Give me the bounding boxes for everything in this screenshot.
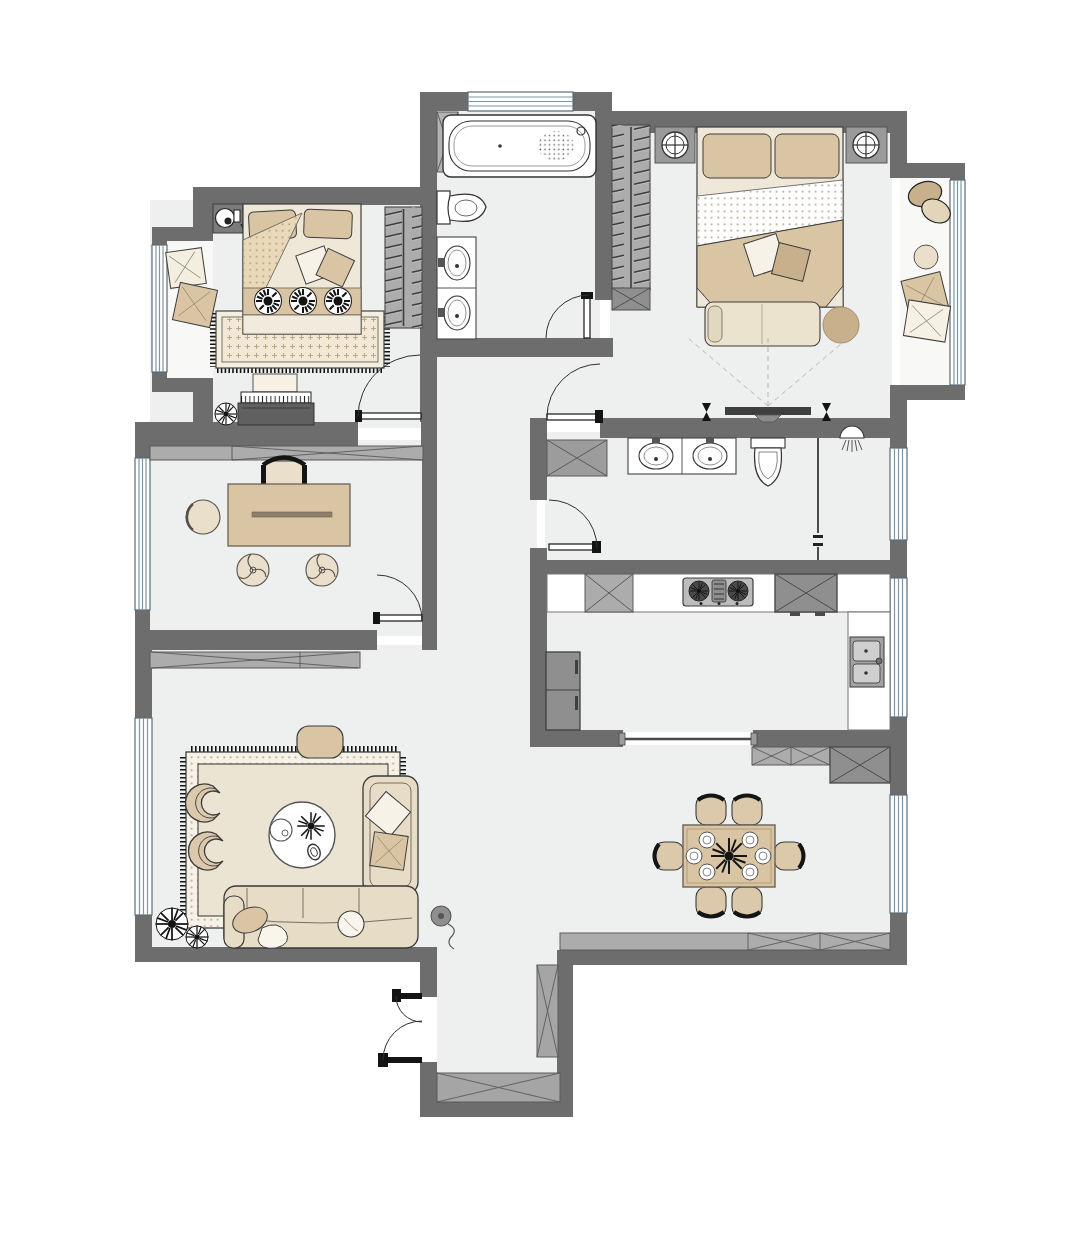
stool-left (237, 554, 269, 586)
coffee-table (269, 802, 335, 868)
corner-appliance (213, 204, 244, 233)
dining-table (683, 825, 775, 887)
kitchen-cabinet-left (585, 574, 633, 612)
side-table (186, 500, 220, 534)
gas-stove (683, 578, 753, 606)
kitchen-sink (850, 637, 884, 687)
stool-right (306, 554, 338, 586)
dining-sideboard-corner (830, 747, 890, 783)
bathtub (443, 115, 596, 177)
second-balcony-window (152, 245, 167, 372)
kitchen-window (890, 578, 907, 717)
dining-bottom-cabinet (560, 933, 890, 950)
shared-bath-window (890, 448, 907, 540)
centerpiece-plant (711, 838, 747, 874)
entry-double-door (378, 989, 422, 1067)
piano-bench (253, 374, 297, 392)
shared-bath-cabinet (547, 440, 607, 476)
pouf (297, 726, 343, 758)
master-bath-window (468, 92, 573, 111)
walk-in-wardrobe (612, 125, 650, 310)
double-bed (243, 204, 361, 334)
living-window (135, 718, 152, 915)
balcony-stool (914, 245, 938, 269)
master-balcony-window (950, 180, 965, 385)
nightstand-left (655, 127, 695, 163)
entry-shoe-cabinet-side (537, 965, 558, 1057)
dining-sideboard-top (752, 747, 830, 765)
kitchen-cabinet-right (775, 574, 837, 616)
refrigerator (546, 652, 580, 730)
master-bed (697, 127, 843, 307)
desk (228, 484, 350, 546)
bedroom-plant (215, 403, 237, 425)
piano (238, 392, 314, 425)
shared-bath-vanity (628, 437, 736, 474)
entry-shoe-cabinet-bottom (437, 1073, 560, 1102)
bedroom-wardrobe (385, 207, 422, 328)
nightstand-right (846, 127, 887, 163)
study-window (135, 458, 150, 610)
kitchen-sliding-opening (619, 733, 757, 745)
living-low-cabinet (150, 652, 360, 668)
foot-bench (705, 302, 820, 346)
floor-plan-page (0, 0, 1080, 1259)
round-ottoman (823, 307, 859, 343)
master-bath-vanity (437, 237, 476, 339)
dining-window (890, 795, 907, 913)
floor-plan-drawing (0, 0, 1080, 1259)
